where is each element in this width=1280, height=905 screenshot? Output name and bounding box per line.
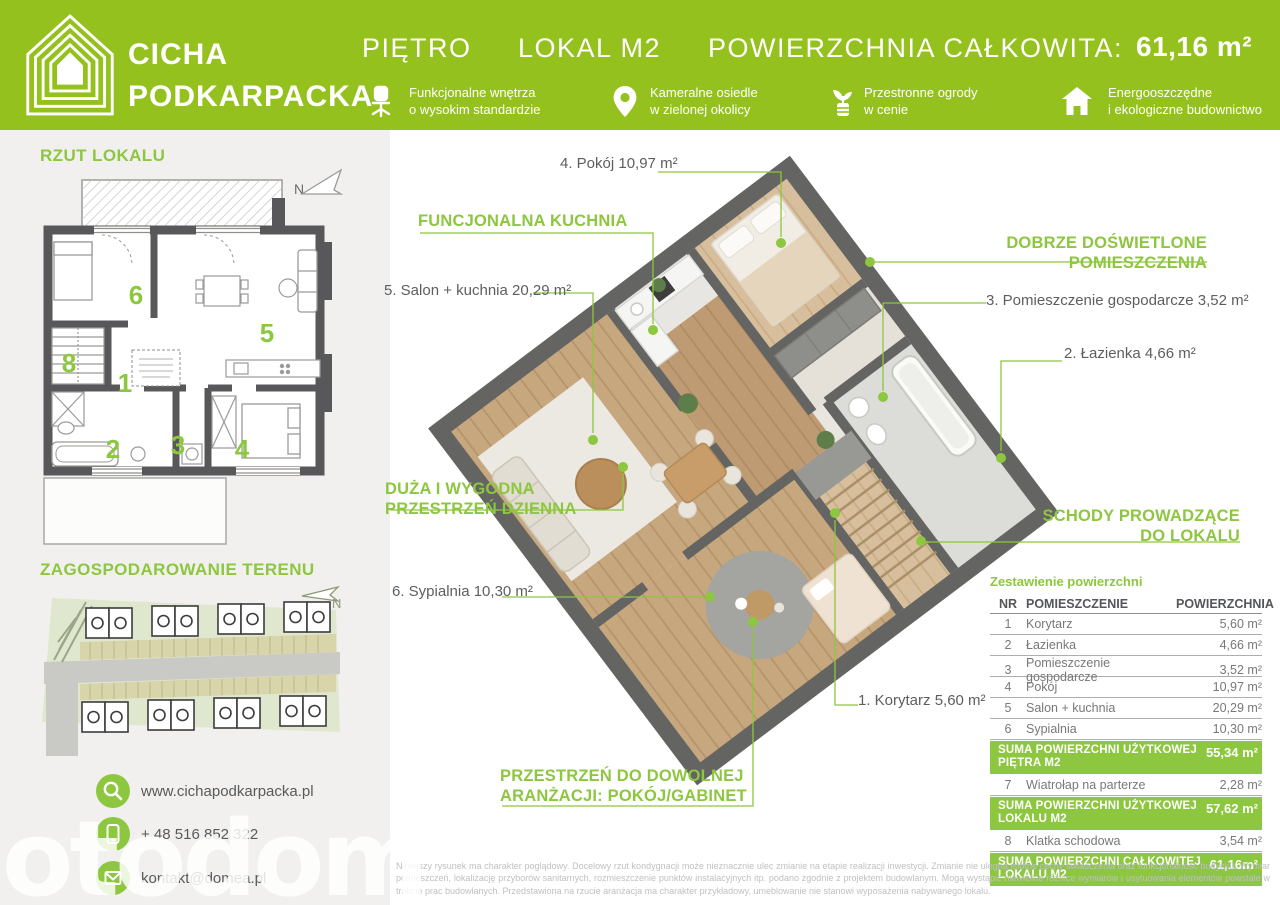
toilet (58, 422, 74, 434)
table-row: 2 Łazienka 4,66 m² (990, 635, 1262, 656)
plan-note-box (132, 350, 180, 386)
feature-line1: Funkcjonalne wnętrza (409, 85, 541, 102)
sum-floor-row: SUMA POWIERZCHNI UŻYTKOWEJ PIĘTRA M2 55,… (990, 741, 1262, 774)
developer-logo-icon (22, 10, 118, 120)
floor-plan-2d: 6 5 8 1 2 3 4 N (36, 156, 348, 552)
feature-line2: w cenie (864, 102, 977, 119)
label-stairs: SCHODY PROWADZĄCE DO LOKALU (1043, 506, 1240, 546)
sidebar: RZUT LOKALU (0, 130, 390, 905)
col-nr: NR (990, 597, 1026, 611)
otodom-watermark: otodom (2, 798, 425, 905)
location-pin-icon (608, 84, 642, 118)
wardrobe (212, 396, 236, 448)
potted-plant-icon (826, 84, 860, 118)
label-room4: 4. Pokój 10,97 m² (560, 155, 678, 172)
table-row: 6 Sypialnia 10,30 m² (990, 719, 1262, 740)
label-well-lit: DOBRZE DOŚWIETLONE POMIESZCZENIA (1006, 233, 1207, 273)
label-room6: 6. Sypialnia 10,30 m² (392, 583, 533, 600)
terrace (82, 180, 282, 227)
table-row: 5 Salon + kuchnia 20,29 m² (990, 698, 1262, 719)
bed (242, 404, 300, 458)
label-room5: 5. Salon + kuchnia 20,29 m² (384, 282, 571, 299)
col-room: POMIESZCZENIE (1026, 597, 1176, 611)
table-row: 7 Wiatrołap na parterze 2,28 m² (990, 775, 1262, 796)
logo-text-line1: CICHA (128, 38, 228, 72)
col-area: POWIERZCHNIA (1176, 597, 1262, 611)
feature-text: Funkcjonalne wnętrza o wysokim standardz… (409, 85, 541, 118)
feature-line1: Przestronne ogrody (864, 85, 977, 102)
svg-text:6: 6 (129, 280, 143, 310)
stairs (52, 328, 104, 384)
feature-line2: i ekologiczne budownictwo (1108, 102, 1262, 119)
label-room3: 3. Pomieszczenie gospodarcze 3,52 m² (986, 292, 1249, 309)
feature-line1: Kameralne osiedle (650, 85, 758, 102)
shower (52, 392, 84, 426)
feature-text: Energooszczędne i ekologiczne budownictw… (1108, 85, 1262, 118)
svg-text:2: 2 (106, 434, 120, 464)
wall-stub (272, 198, 285, 228)
svg-text:3: 3 (171, 430, 185, 460)
apartment-render (440, 168, 1047, 774)
total-area-value: 61,16 m² (1136, 31, 1252, 63)
total-area-label: POWIERZCHNIA CAŁKOWITA: (708, 33, 1123, 64)
svg-text:5: 5 (260, 318, 274, 348)
label-kitchen-highlight: FUNCJONALNA KUCHNIA (418, 211, 627, 231)
label-living-space: DUŻA I WYGODNA PRZESTRZEŃ DZIENNA (385, 479, 577, 519)
ground-garden-outline (44, 478, 226, 544)
svg-text:N: N (332, 596, 341, 611)
svg-text:1: 1 (118, 368, 132, 398)
feature-line2: w zielonej okolicy (650, 102, 758, 119)
svg-text:4: 4 (235, 434, 250, 464)
feature-line1: Energooszczędne (1108, 85, 1262, 102)
feature-line2: o wysokim standardzie (409, 102, 541, 119)
coffee-table (279, 279, 297, 297)
svg-text:8: 8 (62, 348, 76, 378)
site-title: ZAGOSPODAROWANIE TERENU (40, 560, 315, 580)
site-plan: N (34, 582, 346, 756)
eco-house-icon (1060, 84, 1094, 118)
unit-label: LOKAL M2 (518, 33, 661, 64)
table-row: 8 Klatka schodowa 3,54 m² (990, 831, 1262, 852)
table-row: 4 Pokój 10,97 m² (990, 677, 1262, 698)
dining-table (196, 276, 248, 306)
table-row: 1 Korytarz 5,60 m² (990, 614, 1262, 635)
bed (54, 242, 92, 300)
sum-usable-row: SUMA POWIERZCHNI UŻYTKOWEJ LOKALU M2 57,… (990, 797, 1262, 830)
area-summary-table: Zestawienie powierzchni NR POMIESZCZENIE… (990, 574, 1262, 887)
feature-text: Kameralne osiedle w zielonej okolicy (650, 85, 758, 118)
legal-disclaimer: Niniejszy rysunek ma charakter poglądowy… (396, 860, 1270, 897)
flyer-page: CICHA PODKARPACKA PIĘTRO LOKAL M2 POWIER… (0, 0, 1280, 905)
label-room2: 2. Łazienka 4,66 m² (1064, 345, 1196, 362)
label-room1: 1. Korytarz 5,60 m² (858, 692, 986, 709)
floor-label: PIĘTRO (362, 33, 472, 64)
washbasin (131, 447, 145, 461)
header-bar: CICHA PODKARPACKA PIĘTRO LOKAL M2 POWIER… (0, 0, 1280, 130)
feature-text: Przestronne ogrody w cenie (864, 85, 977, 118)
office-chair-icon (364, 84, 398, 118)
sofa (298, 250, 317, 312)
kitchen-counter (226, 360, 320, 377)
table-row: 3 Pomieszczenie gospodarcze 3,52 m² (990, 656, 1262, 677)
label-flex-space: PRZESTRZEŃ DO DOWOLNEJ ARANŻACJI: POKÓJ/… (500, 766, 747, 806)
logo-text-line2: PODKARPACKA (128, 80, 373, 114)
north-arrow-icon: N (294, 170, 341, 197)
table-title: Zestawienie powierzchni (990, 574, 1262, 589)
table-header-row: NR POMIESZCZENIE POWIERZCHNIA (990, 594, 1262, 614)
